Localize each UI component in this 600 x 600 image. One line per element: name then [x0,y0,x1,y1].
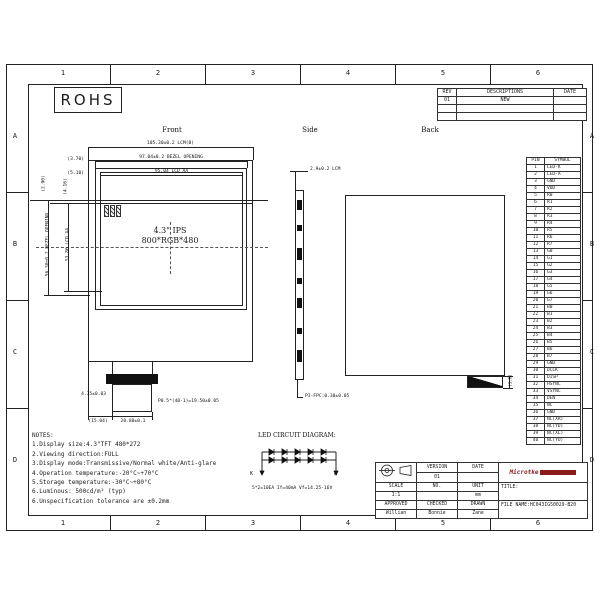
pin-number: 20 [527,298,545,305]
dim-line [100,175,243,176]
pin-symbol: G6 [545,291,581,298]
pin-symbol: R3 [545,214,581,221]
drawn-value: Zane [458,510,499,519]
glass-edge-line [50,203,253,204]
zone-letter: B [8,240,22,248]
dim-aa-width: 95.04 LCD AA [100,169,243,174]
pin-number: 15 [527,263,545,270]
pin-row: 33 VSYNC [527,389,581,396]
zone-tick [300,64,301,84]
zone-tick [583,192,593,193]
pin-symbol: NC(YD) [545,424,581,431]
drawn-label: DRAWN [458,501,499,510]
zone-letter: C [8,348,22,356]
pin-row: 27 B6 [527,347,581,354]
pin-row: 8 R3 [527,214,581,221]
led-diagram-title: LED CIRCUIT DIAGRAM: [258,433,336,438]
pin-row: 34 DEN [527,396,581,403]
pin-row: 4 VDD [527,186,581,193]
pin-row: 26 B5 [527,340,581,347]
no-value [417,492,458,501]
zone-tick [583,300,593,301]
pin-row: 10 R5 [527,228,581,235]
pin-symbol: R4 [545,221,581,228]
pin-row: 32 HSYNC [527,382,581,389]
pin-symbol: LED-A [545,172,581,179]
dim-line [95,161,247,162]
rev-cell [438,105,457,113]
symbol-header: SYMBOL [545,158,581,165]
scale-label: SCALE [376,483,417,492]
pin-symbol: B5 [545,340,581,347]
note-line: 1.Display size:4.3"TFT 480*272 [32,440,216,449]
dim-ext [297,397,303,398]
dim-ext [88,362,89,420]
pin-row: 35 NC [527,403,581,410]
unit-label: UNIT [458,483,499,492]
pin-number: 40 [527,438,545,445]
revision-row [438,105,587,113]
pin-symbol: GND [545,361,581,368]
company-logo-cjk-bar [540,470,576,475]
pin-row: 23 B2 [527,319,581,326]
date-cell [554,97,587,105]
pin-row: 6 R1 [527,200,581,207]
date-label: DATE [458,463,499,473]
pin-number: 2 [527,172,545,179]
pin-number: 10 [527,228,545,235]
led-circuit-drawing [256,444,342,476]
side-component [297,350,302,362]
pin-symbol: B7 [545,354,581,361]
pin-number: 28 [527,354,545,361]
pin-row: 13 G0 [527,249,581,256]
note-line: 2.Viewing direction:FULL [32,450,216,459]
pin-symbol: R2 [545,207,581,214]
pin-symbol: G7 [545,298,581,305]
pin-table-body: 1 LED-K 2 LED-A 3 GND 4 VDD 5 R0 6 R1 7 … [527,165,581,445]
pin-row: 19 G6 [527,291,581,298]
dim-tail-width: 20.80±0.1 [114,419,152,424]
fpc-tail [112,384,152,412]
pin-row: 38 NC(YD) [527,424,581,431]
pin-number: 16 [527,270,545,277]
dim-ext [95,161,96,168]
zone-tick [205,516,206,531]
description-cell [457,105,554,113]
notes-block: NOTES:1.Display size:4.3"TFT 480*2722.Vi… [32,431,216,506]
title-block: VERSION DATE Microtke 01 SCALE NO. UNIT … [375,462,588,519]
zone-number: 6 [530,519,546,527]
pin-row: 22 B1 [527,312,581,319]
pin-row: 9 R4 [527,221,581,228]
pin-symbol: HSYNC [545,382,581,389]
side-component [297,328,302,334]
dim-ext [503,388,513,389]
dim-ext [295,171,296,190]
dim-line [290,171,308,172]
pin-row: 37 NC(XR) [527,417,581,424]
pin-row: 39 NC(XL) [527,431,581,438]
pin-symbol: GND [545,179,581,186]
pin-number: 19 [527,291,545,298]
pin-number: 37 [527,417,545,424]
dim-offset-4: (4.16) [64,172,69,202]
zone-number: 6 [530,69,546,77]
pin-symbol: R7 [545,242,581,249]
version-label: VERSION [417,463,458,473]
note-line: 6.Luminous: 500cd/m² (typ) [32,487,216,496]
note-line: 6.Unspecification tolerance are ±0.2mm [32,497,216,506]
pin-number: 4 [527,186,545,193]
zone-number: 4 [340,69,356,77]
pin-symbol: B6 [545,347,581,354]
pin-row: 30 DCLK [527,368,581,375]
dim-tail-x: (15.04) [80,419,116,424]
dim-tail-offset: 4.35±0.03 [60,392,106,397]
note-line: 4.Operation temperature:-20°C~+70°C [32,469,216,478]
back-fpc-fold [467,376,503,388]
back-outline [345,195,505,376]
pin-symbol: NC(YU) [545,438,581,445]
zone-number: 2 [150,69,166,77]
pin-symbol: B2 [545,319,581,326]
pin-number: 34 [527,396,545,403]
zone-number: 3 [245,69,261,77]
revision-row [438,113,587,121]
pin-number: 32 [527,382,545,389]
dim-ext [88,147,89,160]
scale-value: 1:1 [376,492,417,501]
rohs-logo: ROHS [54,87,122,113]
pin-number: 27 [527,347,545,354]
dim-ext [152,412,153,420]
fpc-tail-edge [112,362,113,374]
pin-number: 22 [527,312,545,319]
pin-number: 14 [527,256,545,263]
pin-number: 25 [527,333,545,340]
projection-symbol-icon [377,463,415,478]
pin-number: 7 [527,207,545,214]
date-cell [554,113,587,121]
revision-table: REV DESCRIPTIONS DATE 01 NEW [437,88,587,121]
pin-row: 20 G7 [527,298,581,305]
pin-row: 24 B3 [527,326,581,333]
zone-number: 4 [340,519,356,527]
no-label: NO. [417,483,458,492]
pin-number: 3 [527,179,545,186]
dim-bezel-width: 97.04±0.2 BEZEL OPENING [95,155,247,160]
date-value [458,473,499,483]
zone-number: 5 [435,519,451,527]
zone-tick [205,64,206,84]
pin-table: PIN SYMBOL 1 LED-K 2 LED-A 3 GND 4 VDD 5… [526,157,581,445]
company-logo: Microtke [510,469,539,477]
dim-aa-height: 53.86 LCD AA [66,195,71,295]
fpc-line [297,380,298,398]
zone-tick [490,64,491,84]
zone-tick [395,64,396,84]
rev-header: REV [438,89,457,97]
zone-tick [300,516,301,531]
pin-number: 38 [527,424,545,431]
revision-row: 01 NEW [438,97,587,105]
side-component [297,225,302,231]
pin-symbol: B1 [545,312,581,319]
projection-symbol-cell [376,463,417,483]
note-line: 5.Storage temperature:-30°C~+80°C [32,478,216,487]
approved-value: Willian [376,510,417,519]
pin-symbol: B0 [545,305,581,312]
checked-label: CHECKED [417,501,458,510]
pin-number: 23 [527,319,545,326]
pin-number: 39 [527,431,545,438]
zone-tick [6,300,28,301]
pin-row: 36 GND [527,410,581,417]
side-component [297,248,302,260]
pin-number: 11 [527,235,545,242]
pin-symbol: G1 [545,256,581,263]
fpc-tab [116,205,121,217]
pin-row: 17 G4 [527,277,581,284]
date-header: DATE [554,89,587,97]
pin-number: 26 [527,340,545,347]
pin-row: 1 LED-K [527,165,581,172]
centerline-horizontal [36,247,268,248]
pin-number: 29 [527,361,545,368]
dim-lcm-thickness: 2.9±0.2 LCM [310,167,340,172]
led-cathode-label: K [250,472,253,477]
pin-symbol: G5 [545,284,581,291]
dim-fpc-pitch: P0.5*(40-1)=19.50±0.05 [158,399,219,404]
pin-row: 12 R7 [527,242,581,249]
back-view-label: Back [410,128,450,133]
description-cell: NEW [457,97,554,105]
centerline-vertical [170,222,171,274]
dim-ext [247,161,248,168]
pin-symbol: G2 [545,263,581,270]
pin-row: 16 G3 [527,270,581,277]
pin-symbol: VSYNC [545,389,581,396]
zone-number: 3 [245,519,261,527]
version-value: 01 [417,473,458,483]
pin-number: 33 [527,389,545,396]
pin-symbol: NC(XL) [545,431,581,438]
dim-bezel-height: 56.30±0.2 BEZEL OPENING [46,195,51,295]
rev-cell [438,113,457,121]
pin-symbol: DISP [545,375,581,382]
dim-line [88,147,253,148]
fpc-tab [104,205,109,217]
pin-row: 14 G1 [527,256,581,263]
pin-number: 1 [527,165,545,172]
pin-symbol: R0 [545,193,581,200]
zone-tick [110,516,111,531]
pin-number: 24 [527,326,545,333]
side-view-label: Side [290,128,330,133]
pin-symbol: R6 [545,235,581,242]
pin-row: 11 R6 [527,235,581,242]
zone-number: 1 [55,519,71,527]
pin-number: 35 [527,403,545,410]
pin-row: 2 LED-A [527,172,581,179]
pin-number: 9 [527,221,545,228]
pin-number: 21 [527,305,545,312]
pin-row: 29 GND [527,361,581,368]
pin-number: 18 [527,284,545,291]
zone-tick [6,192,28,193]
pin-header: PIN [527,158,545,165]
dim-ext [253,147,254,160]
pin-row: 31 DISP [527,375,581,382]
pin-symbol: R5 [545,228,581,235]
descriptions-header: DESCRIPTIONS [457,89,554,97]
pin-symbol: R1 [545,200,581,207]
pin-symbol: G3 [545,270,581,277]
pin-symbol: NC [545,403,581,410]
zone-letter: D [8,456,22,464]
pin-row: 18 G5 [527,284,581,291]
approved-label: APPROVED [376,501,417,510]
pin-number: 6 [527,200,545,207]
fpc-stiffener [106,374,158,384]
pin-symbol: G4 [545,277,581,284]
pin-number: 5 [527,193,545,200]
pin-number: 30 [527,368,545,375]
zone-number: 1 [55,69,71,77]
pin-symbol: NC(XR) [545,417,581,424]
zone-tick [110,64,111,84]
checked-value: Bonnie [417,510,458,519]
pin-row: 21 B0 [527,305,581,312]
pin-symbol: B4 [545,333,581,340]
dim-offset-1: (3.70) [52,157,84,162]
drawing-sheet: 123456 123456 ABCD ABCD ROHS REV DESCRIP… [0,0,600,600]
dim-offset-3: (2.90) [42,169,47,199]
pin-number: 8 [527,214,545,221]
dim-fpc-thickness: PI-FPC:0.30±0.05 [305,394,349,399]
pin-number: 12 [527,242,545,249]
dim-line [88,416,152,417]
front-view-label: Front [140,128,204,133]
pin-table-header: PIN SYMBOL [527,158,581,165]
zone-number: 2 [150,519,166,527]
fpc-tab [110,205,115,217]
pin-row: 3 GND [527,179,581,186]
date-cell [554,105,587,113]
pin-number: 17 [527,277,545,284]
fpc-tail-edge [152,362,153,374]
pin-symbol: B3 [545,326,581,333]
led-anode-label: A [334,472,337,477]
title-label: TITLE: [499,483,588,501]
pin-row: 15 G2 [527,263,581,270]
pin-number: 13 [527,249,545,256]
pin-row: 25 B4 [527,333,581,340]
pin-row: 28 B7 [527,354,581,361]
rev-cell: 01 [438,97,457,105]
dim-back-step: (1.0) [508,374,513,388]
zone-tick [6,408,28,409]
pin-symbol: GND [545,410,581,417]
pin-row: 7 R2 [527,207,581,214]
note-line: 3.Display mode:Transmissive/Normal white… [32,459,216,468]
pin-symbol: G0 [545,249,581,256]
side-component [297,278,302,284]
note-line: NOTES: [32,431,216,440]
pin-symbol: DCLK [545,368,581,375]
zone-letter: C [585,348,599,356]
pin-number: 31 [527,375,545,382]
pin-row: 5 R0 [527,193,581,200]
dim-ext [44,295,90,296]
zone-tick [583,408,593,409]
zone-letter: A [8,132,22,140]
zone-number: 5 [435,69,451,77]
zone-letter: B [585,240,599,248]
pin-row: 40 NC(YU) [527,438,581,445]
company-logo-cell: Microtke [499,463,588,483]
file-name: FILE NAME:HC043IG50029-B20 [499,501,588,519]
side-component [297,298,302,308]
zone-letter: A [585,132,599,140]
side-component [297,200,302,210]
unit-value: mm [458,492,499,501]
description-cell [457,113,554,121]
pin-symbol: LED-K [545,165,581,172]
pin-symbol: DEN [545,396,581,403]
pin-number: 36 [527,410,545,417]
led-diagram-caption: 5*2=10EA If=40mA Vf=14.25-16V [252,486,332,491]
dim-lcm-width: 105.30±0.2 LCM(B) [88,141,253,146]
pin-symbol: VDD [545,186,581,193]
